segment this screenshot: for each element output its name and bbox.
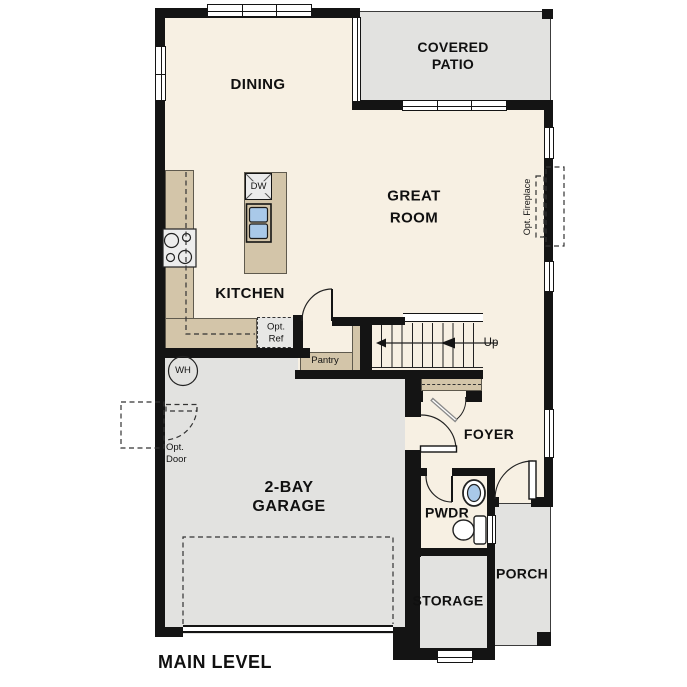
sink-basin <box>250 208 268 223</box>
up-label: Up <box>484 336 499 350</box>
opt-door-line2: Door <box>166 454 187 466</box>
toilet-bowl <box>453 520 474 540</box>
closet-door-arc <box>457 397 466 419</box>
stairs-arrow-head <box>376 339 386 348</box>
dining-label: DINING <box>231 74 286 96</box>
optional-door-arc-dashed <box>165 407 198 440</box>
garage-line2: GARAGE <box>252 497 325 516</box>
garage-door-ceiling-dashed <box>183 537 393 624</box>
kitchen-label: KITCHEN <box>215 283 284 305</box>
opt-door-line1: Opt. <box>166 442 187 454</box>
garage-entry-door-arc <box>421 415 456 450</box>
closet-door-leaf-core <box>433 400 456 420</box>
pantry-door-arc <box>302 289 332 321</box>
porch-label: PORCH <box>496 566 548 583</box>
great-room-label: GREAT ROOM <box>387 185 440 229</box>
front-door-arc <box>495 461 533 499</box>
floor-plan: DINING COVERED PATIO GREAT ROOM KITCHEN … <box>0 0 687 687</box>
great-room-line1: GREAT <box>387 185 440 207</box>
storage-label: STORAGE <box>412 593 483 610</box>
opt-ref-line1: Opt. <box>267 321 285 333</box>
pwdr-door-arc <box>426 476 452 502</box>
opt-door-label: Opt. Door <box>166 442 187 466</box>
pantry-label: Pantry <box>311 355 338 367</box>
opt-fireplace-label: Opt. Fireplace <box>522 179 532 236</box>
toilet-tank <box>474 516 486 544</box>
garage-entry-door-leaf <box>421 446 457 452</box>
stairs-arrow-head <box>441 338 455 349</box>
covered-patio-line2: PATIO <box>417 56 488 73</box>
sink-basin <box>250 224 268 239</box>
optional-door-leaf-dashed <box>166 405 197 412</box>
plan-linework <box>0 0 687 687</box>
main-level-title: MAIN LEVEL <box>158 652 272 673</box>
opt-ref-line2: Ref <box>267 333 285 345</box>
pwdr-sink-basin <box>468 485 481 502</box>
optional-fireplace-dashed-outer <box>546 167 564 246</box>
garage-label: 2-BAY GARAGE <box>252 478 325 516</box>
covered-patio-label: COVERED PATIO <box>417 39 488 73</box>
garage-line1: 2-BAY <box>252 478 325 497</box>
dishwasher-label: DW <box>250 181 268 193</box>
water-heater-label: WH <box>175 365 191 377</box>
great-room-line2: ROOM <box>387 207 440 229</box>
optional-door-stoop-dashed <box>121 402 164 448</box>
opt-ref-label: Opt. Ref <box>267 321 285 344</box>
foyer-label: FOYER <box>464 424 514 444</box>
covered-patio-line1: COVERED <box>417 39 488 56</box>
optional-fireplace-dashed-inner <box>536 176 544 237</box>
front-door-leaf <box>529 461 536 499</box>
pwdr-label: PWDR <box>425 505 469 522</box>
